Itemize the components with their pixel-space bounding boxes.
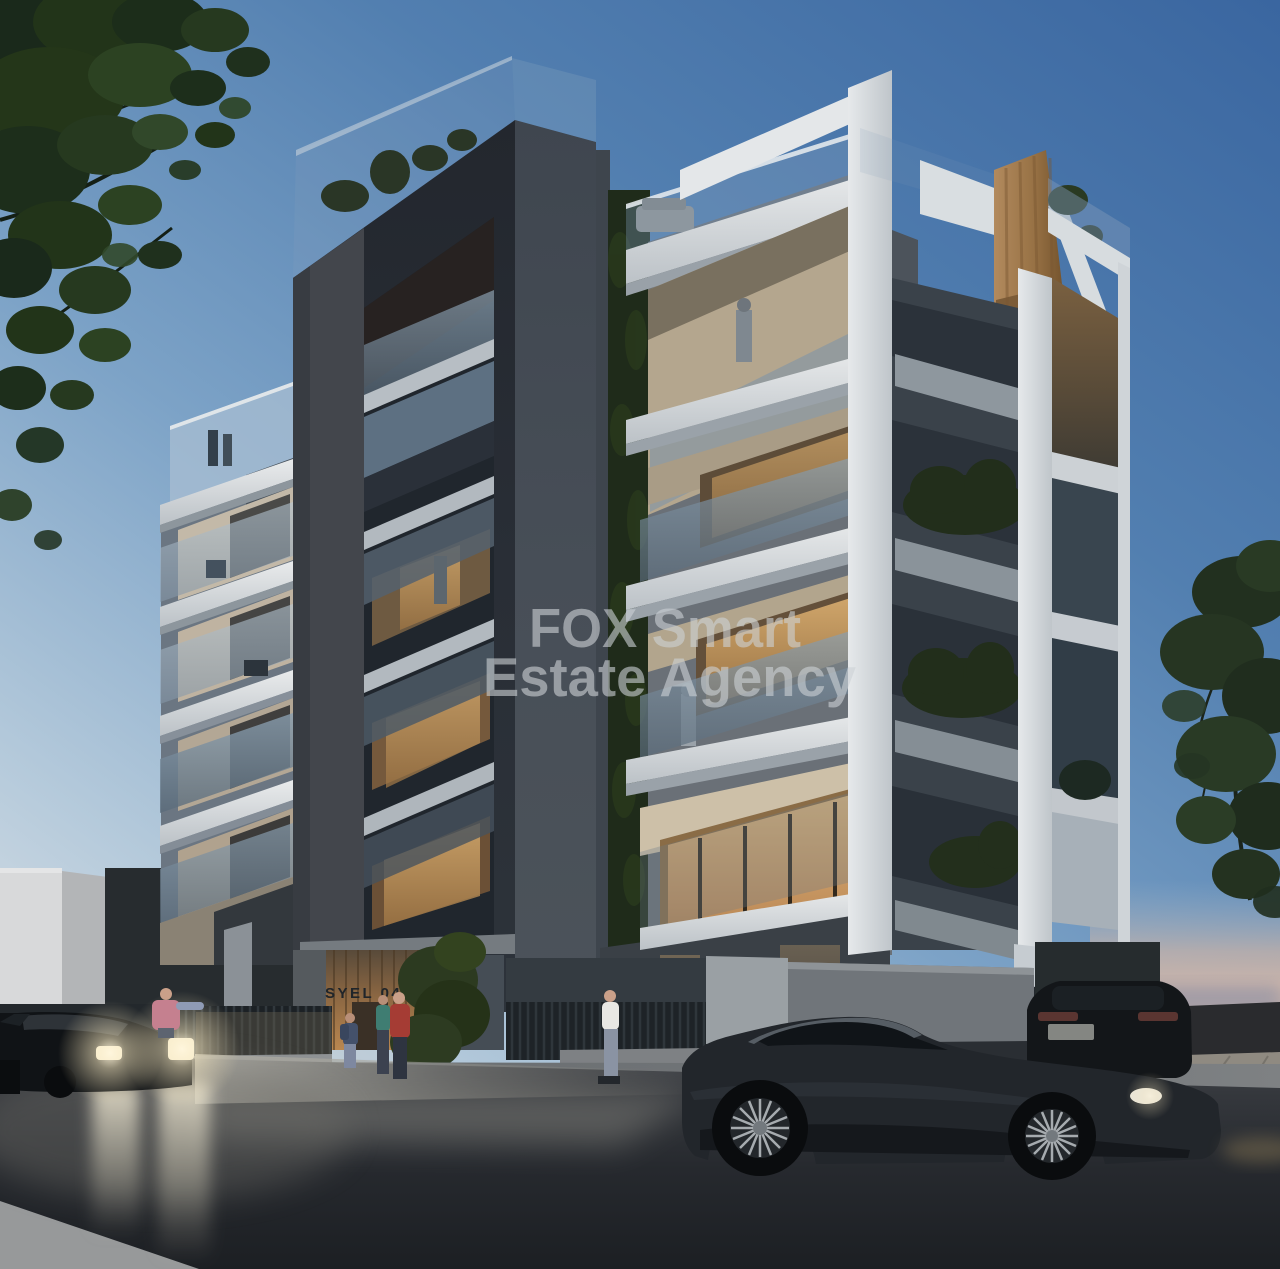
svg-text:Estate Agency: Estate Agency (483, 646, 856, 708)
svg-text:SYEL 04: SYEL 04 (325, 985, 402, 1002)
